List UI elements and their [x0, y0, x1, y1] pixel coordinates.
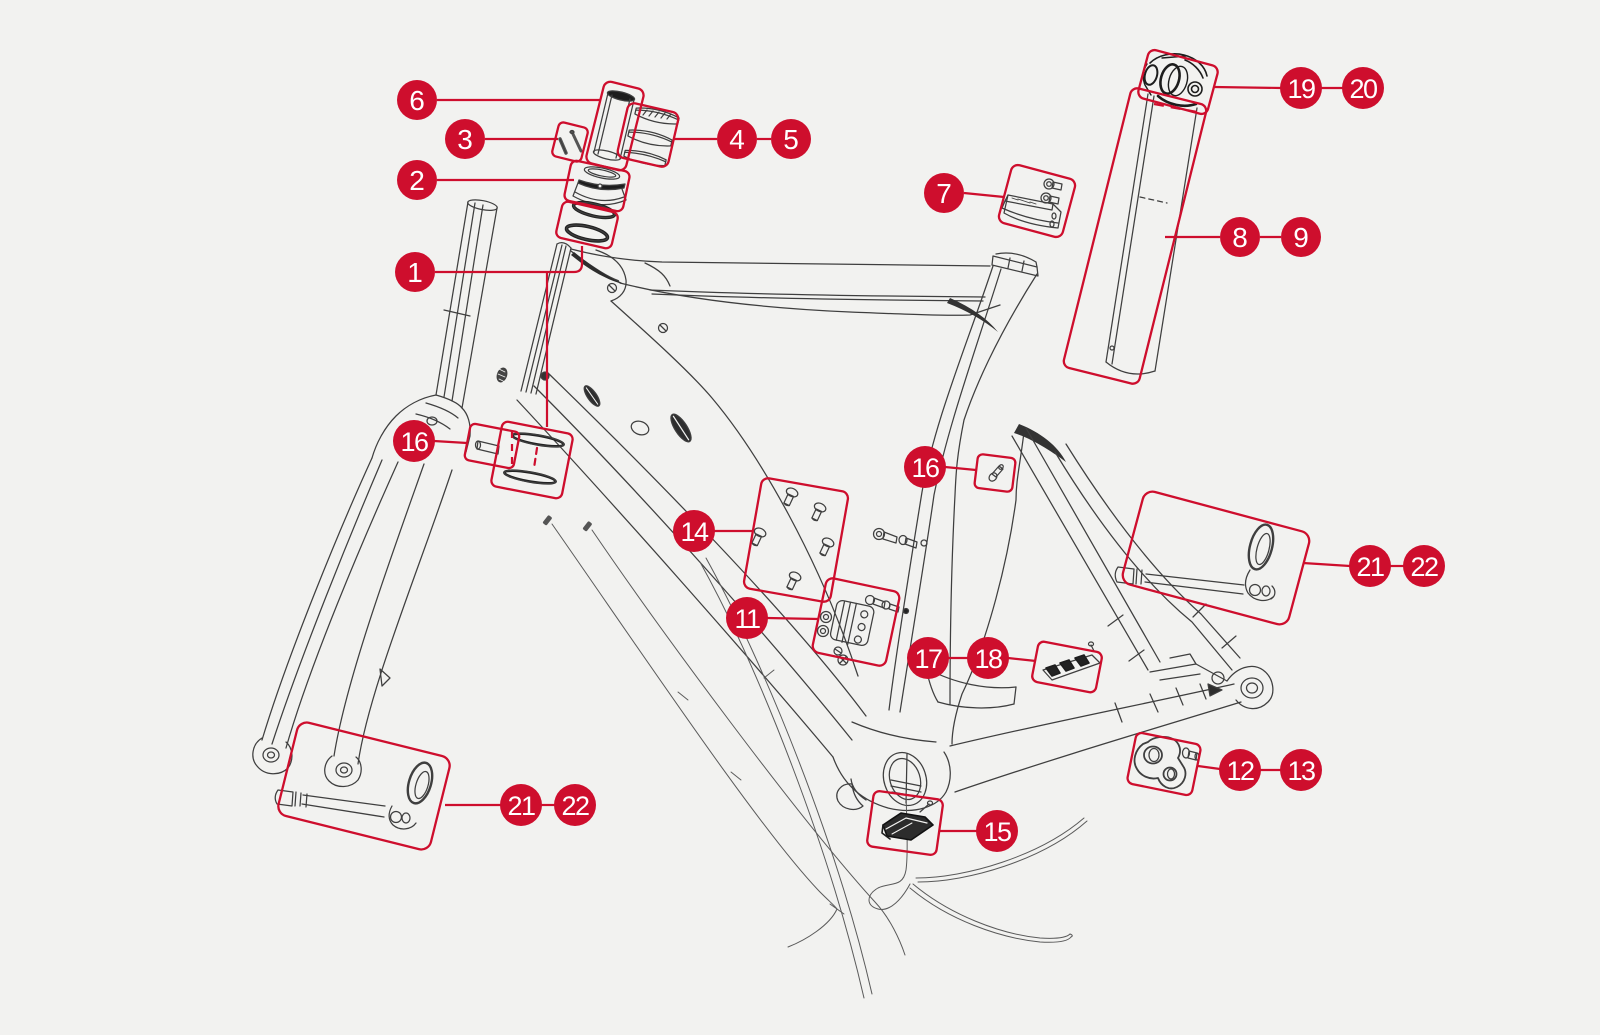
svg-text:12: 12: [1226, 756, 1254, 786]
svg-text:7: 7: [936, 178, 952, 209]
svg-text:1: 1: [407, 257, 423, 288]
svg-text:3: 3: [457, 124, 473, 155]
svg-text:5: 5: [783, 124, 799, 155]
svg-text:2: 2: [409, 165, 425, 196]
svg-text:14: 14: [680, 517, 709, 547]
svg-text:13: 13: [1287, 756, 1315, 786]
svg-text:21: 21: [507, 791, 535, 821]
svg-text:17: 17: [914, 644, 942, 674]
svg-text:22: 22: [1410, 552, 1438, 582]
svg-text:16: 16: [400, 427, 428, 457]
svg-text:4: 4: [729, 124, 745, 155]
svg-text:6: 6: [409, 85, 425, 116]
svg-text:19: 19: [1287, 74, 1315, 104]
svg-text:22: 22: [561, 791, 589, 821]
svg-text:15: 15: [983, 817, 1011, 847]
svg-text:18: 18: [974, 644, 1002, 674]
svg-text:8: 8: [1232, 222, 1248, 253]
svg-text:11: 11: [734, 604, 760, 634]
svg-text:16: 16: [911, 453, 939, 483]
svg-text:20: 20: [1349, 74, 1377, 104]
svg-text:9: 9: [1293, 222, 1309, 253]
svg-text:21: 21: [1356, 552, 1384, 582]
